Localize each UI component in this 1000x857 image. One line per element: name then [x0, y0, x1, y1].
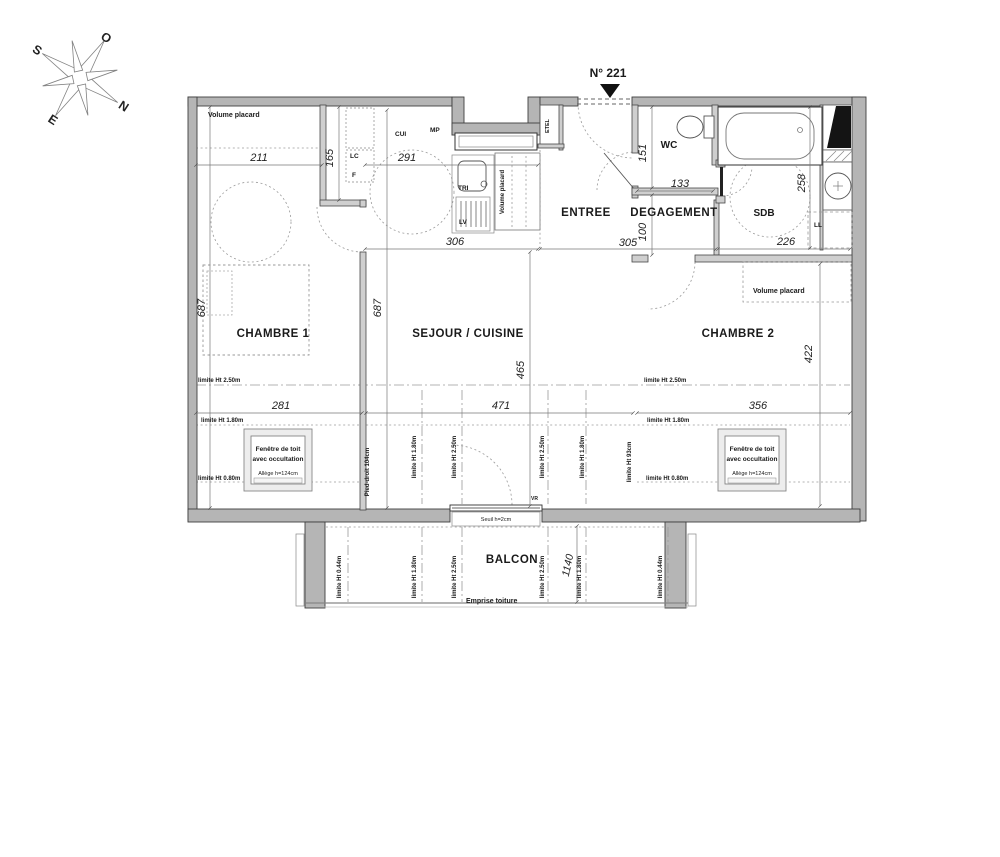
bay-window: Seuil h=2cm VR: [450, 496, 542, 526]
limite-180-v1: limite Ht 1.80m: [412, 436, 418, 478]
clearance-circle-sdb: [730, 157, 810, 237]
lv-label: LV: [459, 219, 467, 226]
roof-window-left-allege: Allège h=124cm: [258, 471, 298, 477]
door-arc-sdb: [722, 167, 752, 196]
roof-window-left: Fenêtre de toit avec occultation Allège …: [244, 429, 312, 491]
unit-pointer-icon: [600, 84, 620, 98]
limite-180-v2: limite Ht 1.80m: [580, 436, 586, 478]
roof-window-left-line1: Fenêtre de toit: [256, 446, 302, 453]
balcon-limite-250-left: limite Ht 2.50m: [452, 556, 458, 598]
hatch-strip: [823, 150, 852, 162]
dim-291: 291: [397, 152, 416, 164]
dim-471: 471: [492, 400, 510, 412]
dim-211: 211: [249, 152, 268, 164]
volume-placard-ch2-box: [743, 262, 851, 302]
partition-step: [320, 200, 366, 206]
roof-window-right-line1: Fenêtre de toit: [730, 446, 776, 453]
dim-133: 133: [671, 178, 690, 190]
partition-ch2-top-left: [632, 255, 648, 262]
limite-93-label: limite Ht 93cm: [627, 442, 633, 483]
clearance-circle-chambre1: [211, 182, 291, 262]
compass-star-icon: [18, 16, 142, 140]
dim-422: 422: [803, 345, 815, 363]
wc-door-leaf: [604, 153, 635, 190]
door-arc-chambre1: [317, 207, 362, 252]
balcon-limite-250-right: limite Ht 2.50m: [540, 556, 546, 598]
fixtures: Fenêtre de toit avec occultation Allège …: [203, 105, 852, 491]
room-chambre1: CHAMBRE 1: [237, 328, 310, 340]
balcony-trim-right: [688, 534, 696, 606]
sdb-door-panel: [720, 167, 723, 196]
wall-right: [852, 97, 866, 521]
unit-marker: N° 221: [590, 66, 627, 98]
compass-rose: N O S E: [3, 2, 158, 157]
limite-080-left: limite Ht 0.80m: [198, 476, 240, 482]
kitchen-tall-unit-1: [346, 108, 374, 148]
pillow-icon: [207, 271, 232, 315]
door-arc-chambre2: [648, 262, 695, 309]
roof-window-right: Fenêtre de toit avec occultation Allège …: [718, 429, 786, 491]
sdb-door-jamb-bottom: [716, 196, 725, 203]
mp-label: MP: [430, 127, 440, 134]
floor-plan-drawing: N O S E N° 221: [0, 0, 1000, 857]
tri-label: TRI: [458, 185, 469, 192]
limite-250-left: limite Ht 2.50m: [198, 378, 240, 384]
f-label: F: [352, 172, 356, 179]
ll-label: LL: [814, 222, 822, 229]
dim-687-mid: 687: [372, 298, 384, 317]
dim-281: 281: [271, 400, 290, 412]
dim-687-left: 687: [196, 298, 208, 317]
dim-226: 226: [776, 236, 796, 248]
vr-label: VR: [531, 496, 538, 502]
room-sdb: SDB: [753, 208, 774, 219]
balcon-limite-180-left: limite Ht 1.80m: [412, 556, 418, 598]
door-arc-entree: [578, 103, 633, 158]
limite-180-right: limite Ht 1.80m: [647, 418, 689, 424]
room-sejour-cuisine: SEJOUR / CUISINE: [412, 328, 524, 340]
emprise-label: Emprise toiture: [466, 598, 517, 605]
dim-465: 465: [515, 360, 527, 379]
volume-placard-ch2: Volume placard: [753, 288, 805, 295]
etel-closet-wall: [559, 105, 563, 150]
seuil-label: Seuil h=2cm: [481, 517, 512, 523]
room-degagement: DEGAGEMENT: [630, 207, 717, 219]
dim-100: 100: [637, 222, 649, 241]
bay-window-arc: [452, 445, 512, 505]
roof-window-left-line2: avec occultation: [253, 456, 304, 463]
balcony-wall-left: [305, 522, 325, 608]
dim-306: 306: [446, 236, 465, 248]
toilet-tank-icon: [704, 116, 714, 138]
pied-droit-label: Pied-droit 104cm: [365, 448, 371, 496]
lc-label: LC: [350, 153, 359, 160]
floor-plan-page: N O S E N° 221: [0, 0, 1000, 857]
volume-placard-sejour: Volume placard: [500, 170, 506, 215]
roof-window-right-line2: avec occultation: [727, 456, 778, 463]
unit-number: N° 221: [590, 66, 627, 80]
dim-258: 258: [796, 173, 808, 193]
etel-label: ETEL: [545, 118, 551, 133]
roof-window-right-allege: Allège h=124cm: [732, 471, 772, 477]
balcon-limite-044-left: limite Ht 0.44m: [337, 556, 343, 598]
limite-250-right: limite Ht 2.50m: [644, 378, 686, 384]
dim-151: 151: [637, 144, 649, 162]
door-arc-wc: [597, 152, 635, 190]
room-balcon: BALCON: [486, 554, 538, 566]
room-chambre2: CHAMBRE 2: [702, 328, 775, 340]
limite-180-left: limite Ht 1.80m: [201, 418, 243, 424]
partition-ch1-top: [360, 200, 366, 207]
bed-icon: [203, 265, 309, 355]
washing-machine-icon: [808, 212, 852, 248]
compass-o: O: [98, 29, 114, 46]
compass-n: N: [116, 98, 131, 115]
volume-placard-ch1: Volume placard: [208, 112, 260, 119]
balcon-limite-044-right: limite Ht 0.44m: [658, 556, 664, 598]
toilet-icon: [677, 116, 703, 138]
dim-305: 305: [619, 237, 638, 249]
limite-080-right: limite Ht 0.80m: [646, 476, 688, 482]
cui-label: CUI: [395, 131, 406, 138]
partition-ch2-top-right: [695, 255, 852, 262]
room-entree: ENTREE: [561, 207, 611, 219]
limite-250-v2: limite Ht 2.50m: [540, 436, 546, 478]
limite-250-v1: limite Ht 2.50m: [452, 436, 458, 478]
compass-s: S: [30, 42, 45, 58]
compass-e: E: [45, 112, 60, 128]
wall-bottom-left: [188, 509, 450, 522]
dim-165: 165: [324, 148, 336, 167]
wall-bottom-right: [542, 509, 860, 522]
dim-1140: 1140: [560, 553, 576, 578]
entrance-step: [455, 133, 537, 150]
balcon-limite-180-right: limite Ht 1.80m: [577, 556, 583, 598]
room-wc: WC: [661, 140, 678, 151]
bathtub-icon: [718, 107, 822, 165]
balcony-trim-left: [296, 534, 304, 606]
etel-closet-bottom: [538, 144, 564, 148]
annotation-texts: Volume placard Volume placard Volume pla…: [198, 112, 805, 605]
dim-356: 356: [749, 400, 768, 412]
